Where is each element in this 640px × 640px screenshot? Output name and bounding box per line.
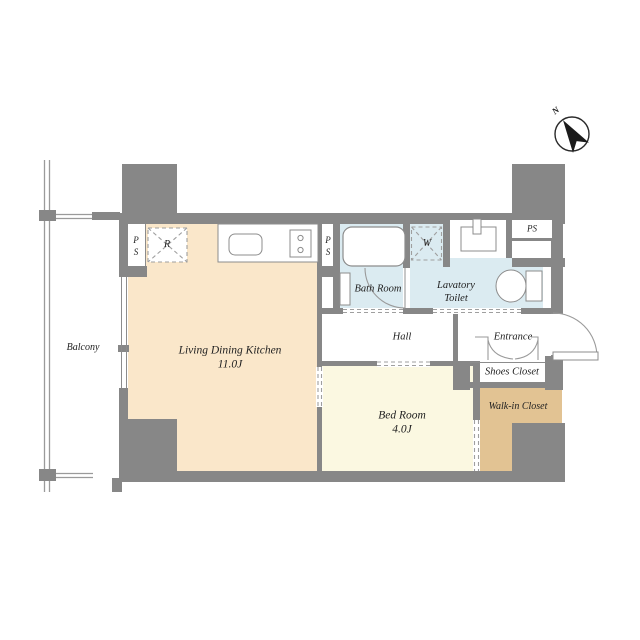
ps-left-label: PS [132, 234, 141, 258]
ldk-size: 11.0J [179, 358, 282, 372]
washbasin-faucet [473, 219, 481, 234]
floor-plan-drawing [0, 0, 640, 640]
bedroom-name: Bed Room [378, 409, 426, 423]
toilet-tank [526, 271, 542, 301]
balcony-railing [39, 160, 93, 492]
ldk-name: Living Dining Kitchen [179, 344, 282, 358]
balcony-window [122, 277, 127, 388]
burner [298, 235, 303, 240]
entrance-door-leaf[interactable] [553, 352, 598, 360]
compass [555, 115, 589, 153]
bedroom-size: 4.0J [378, 423, 426, 437]
entrance-detail [470, 313, 598, 363]
refrigerator-label: R [164, 239, 170, 252]
ps-right-label: PS [527, 223, 537, 234]
shoes-closet-label: Shoes Closet [485, 365, 539, 378]
hall-label: Hall [393, 330, 412, 343]
ps-mid-label: PS [324, 234, 333, 258]
entrance-door-arc [553, 313, 597, 357]
toilet-bowl [496, 270, 526, 302]
bedroom-label: Bed Room 4.0J [378, 409, 426, 438]
entrance-label: Entrance [494, 330, 533, 343]
bathtub [343, 227, 405, 266]
kitchen [148, 224, 318, 262]
lavatory-line1: Lavatory [437, 279, 475, 292]
lavatory-label: Lavatory Toilet [437, 279, 475, 305]
burner [298, 247, 303, 252]
walk-in-closet-label: Walk-in Closet [489, 401, 548, 414]
lavatory-line2: Toilet [437, 292, 475, 305]
bathroom-label: Bath Room [355, 282, 402, 295]
balcony-label: Balcony [67, 342, 100, 355]
bath-counter [340, 273, 350, 305]
floor-plan: Balcony Living Dining Kitchen 11.0J Bed … [0, 0, 640, 640]
washer-label: W [423, 238, 431, 251]
kitchen-sink [229, 234, 262, 255]
ldk-label: Living Dining Kitchen 11.0J [179, 344, 282, 373]
